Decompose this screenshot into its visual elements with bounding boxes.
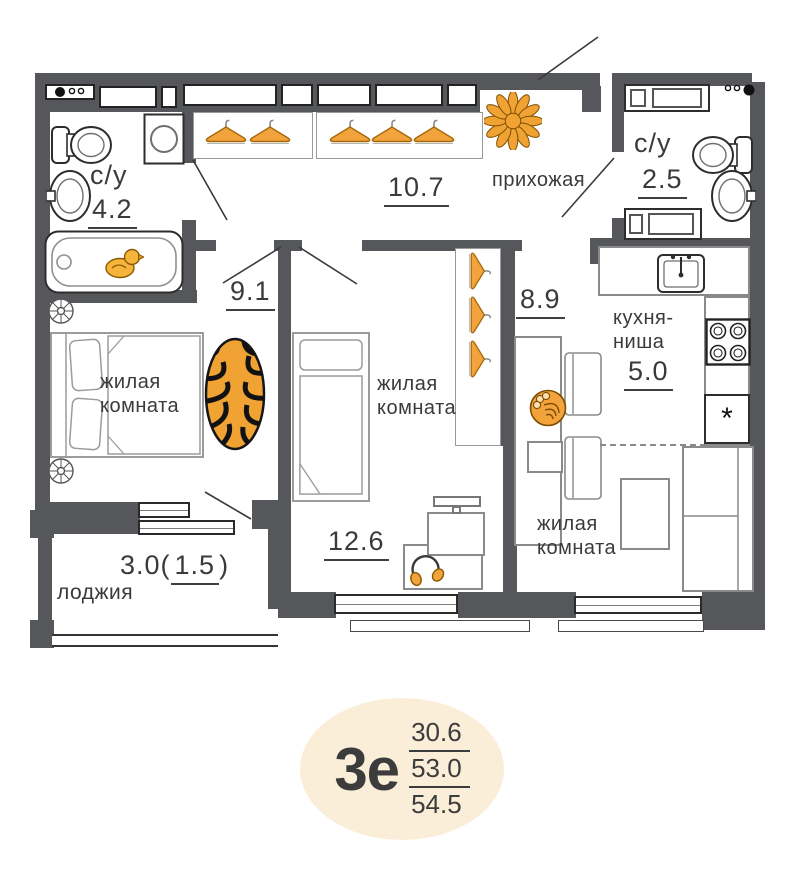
plan-type-label: 3е: [334, 735, 399, 804]
floor-plan-page: * с/у 4.2 10.7 прихожая с/у 2.5 9.1 8.9 …: [0, 0, 800, 873]
room-right-name: жилая комната: [537, 512, 616, 561]
loggia-area: 3.0(1.5): [120, 550, 229, 585]
bathroom-left-name: с/у: [90, 160, 128, 191]
bathroom-right-name: с/у: [634, 128, 672, 159]
kitchen-area: 5.0: [624, 356, 673, 391]
total-area-value: 54.5: [409, 788, 470, 822]
area-value: 53.0: [409, 752, 470, 788]
room-middle-name: жилая комната: [377, 372, 456, 421]
corridor-area: 9.1: [226, 276, 275, 311]
bedroom-left-name: жилая комната: [100, 370, 179, 419]
area-values: 30.6 53.0 54.5: [409, 716, 470, 822]
bathroom-left-area: 4.2: [88, 194, 137, 229]
kitchen-name: кухня- ниша: [613, 306, 674, 355]
kitchen-hall-area: 8.9: [516, 284, 565, 319]
hallway-area: 10.7: [384, 172, 449, 207]
room-middle-area: 12.6: [324, 526, 389, 561]
bathroom-right-area: 2.5: [638, 164, 687, 199]
loggia-name: лоджия: [57, 580, 133, 606]
apartment-type-badge: 3е 30.6 53.0 54.5: [300, 698, 504, 840]
entry-hall-name: прихожая: [492, 168, 585, 192]
living-area-value: 30.6: [409, 716, 470, 752]
